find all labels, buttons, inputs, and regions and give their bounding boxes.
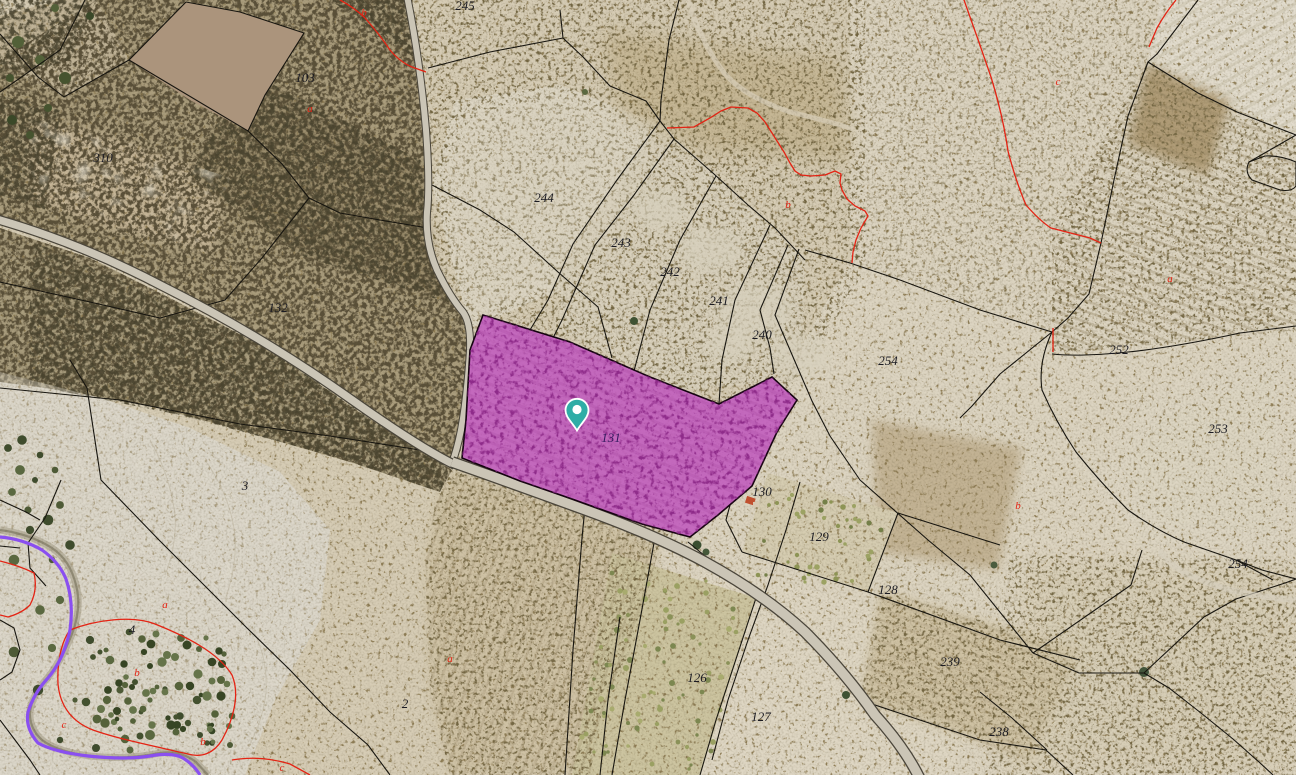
svg-text:240: 240 bbox=[752, 327, 772, 342]
svg-text:127: 127 bbox=[751, 709, 771, 724]
svg-text:c: c bbox=[280, 762, 285, 774]
svg-text:a: a bbox=[307, 103, 313, 115]
svg-text:242: 242 bbox=[660, 264, 680, 279]
svg-text:239: 239 bbox=[940, 654, 960, 669]
svg-text:b: b bbox=[200, 736, 206, 748]
svg-text:b: b bbox=[134, 667, 140, 679]
svg-text:3: 3 bbox=[241, 478, 249, 493]
svg-text:130: 130 bbox=[752, 484, 772, 499]
svg-text:252: 252 bbox=[1109, 342, 1129, 357]
svg-text:b: b bbox=[1015, 500, 1021, 512]
svg-text:4: 4 bbox=[129, 622, 136, 637]
svg-text:128: 128 bbox=[878, 582, 898, 597]
svg-text:c: c bbox=[1056, 76, 1061, 88]
svg-text:c: c bbox=[62, 719, 67, 731]
svg-text:2: 2 bbox=[402, 696, 409, 711]
svg-text:126: 126 bbox=[687, 670, 707, 685]
svg-text:254: 254 bbox=[878, 353, 898, 368]
svg-text:310: 310 bbox=[92, 150, 113, 165]
svg-text:a: a bbox=[1167, 273, 1173, 285]
svg-text:254: 254 bbox=[1228, 556, 1248, 571]
svg-text:a: a bbox=[447, 653, 453, 665]
svg-text:245: 245 bbox=[455, 0, 475, 13]
svg-text:b: b bbox=[361, 7, 367, 19]
svg-text:103: 103 bbox=[295, 70, 315, 85]
svg-text:243: 243 bbox=[611, 235, 631, 250]
svg-text:238: 238 bbox=[989, 724, 1009, 739]
svg-text:132: 132 bbox=[268, 300, 288, 315]
svg-text:241: 241 bbox=[709, 293, 729, 308]
svg-text:253: 253 bbox=[1208, 421, 1228, 436]
svg-text:131: 131 bbox=[601, 430, 621, 445]
svg-text:244: 244 bbox=[534, 190, 554, 205]
svg-text:b: b bbox=[785, 199, 791, 211]
svg-text:a: a bbox=[162, 599, 168, 611]
svg-text:129: 129 bbox=[809, 529, 829, 544]
